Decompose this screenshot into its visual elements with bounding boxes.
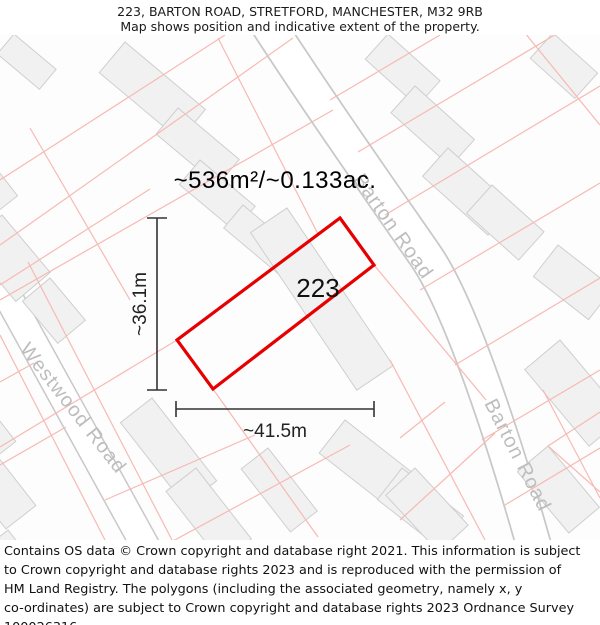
footer-line: 100026316. xyxy=(4,618,600,625)
property-map: Barton Road Barton Road Westwood Road ~5… xyxy=(0,35,600,540)
footer-line: Contains OS data © Crown copyright and d… xyxy=(4,542,600,561)
copyright-footer: Contains OS data © Crown copyright and d… xyxy=(0,540,600,625)
width-dimension-label: ~41.5m xyxy=(243,421,307,442)
map-canvas: Barton Road Barton Road Westwood Road ~5… xyxy=(0,35,600,540)
page-title: 223, BARTON ROAD, STRETFORD, MANCHESTER,… xyxy=(0,0,600,19)
area-label: ~536m²/~0.133ac. xyxy=(174,167,377,194)
footer-line: HM Land Registry. The polygons (includin… xyxy=(4,580,600,599)
map-header: 223, BARTON ROAD, STRETFORD, MANCHESTER,… xyxy=(0,0,600,35)
plot-number-label: 223 xyxy=(296,273,339,303)
property-map-page: 223, BARTON ROAD, STRETFORD, MANCHESTER,… xyxy=(0,0,600,625)
footer-line: to Crown copyright and database rights 2… xyxy=(4,561,600,580)
page-subtitle: Map shows position and indicative extent… xyxy=(0,19,600,35)
footer-line: co-ordinates) are subject to Crown copyr… xyxy=(4,599,600,618)
height-dimension-label: ~36.1m xyxy=(130,272,151,336)
